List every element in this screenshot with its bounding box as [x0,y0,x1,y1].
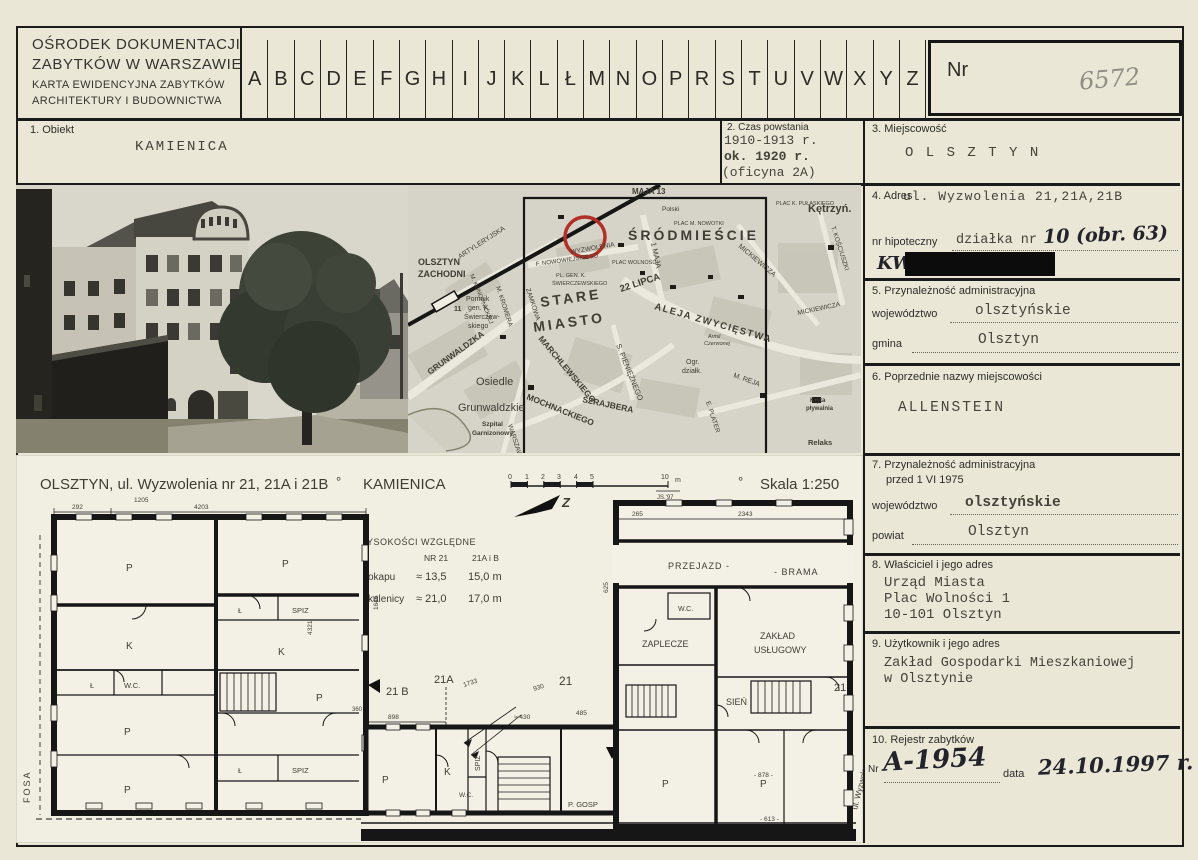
alpha-o: O [637,40,663,118]
room-sien: SIEŃ [726,697,747,707]
plan-subtitle: KAMIENICA [363,476,446,493]
field5-woj-label: województwo [872,308,937,320]
room-wc-wing: W.C. [459,792,473,799]
map-label-srodmiescie: ŚRÓDMIEŚCIE [628,226,759,243]
photo-ground [16,415,408,453]
nr-handwritten-value: 6572 [1078,62,1141,95]
heights-title: WYSOKOŚCI WZGLĘDNE [358,536,476,547]
scale-tick-5: 5 [590,474,594,481]
dim-613: - 613 - [760,816,779,823]
field5-label: 5. Przynależność administracyjna [872,285,1035,297]
field2-line3: (oficyna 2A) [722,165,816,180]
map-label-ogr-1: Ogr. [686,359,699,366]
field9-line2: w Olsztynie [884,672,973,687]
field9-line1: Zakład Gospodarki Mieszkaniowej [884,656,1135,671]
dim-898: 898 [388,714,399,721]
plan-fosa-label: FOSA [22,770,32,803]
room-p-3: P [124,727,131,738]
field5-gmina-label: gmina [872,338,902,350]
dim-2343: 2343 [738,511,753,518]
entrance-21b-label: 21 B [386,686,409,698]
alpha-a: A [242,40,268,118]
room-l-2: Ł [238,606,242,615]
entrance-21a-label: 21A [434,674,454,686]
field7-label2: przed 1 VI 1975 [886,474,964,486]
building-photo [16,185,408,453]
dim-4203: 4203 [194,504,209,511]
scale-tick-4: 4 [574,474,578,481]
field5-gmina-dotted [912,352,1178,353]
room-l-1: Ł [90,681,94,690]
alpha-c: C [295,40,321,118]
field1-label: 1. Obiekt [30,124,74,136]
alpha-s: S [716,40,742,118]
field8-line2: Plac Wolności 1 [884,591,1010,607]
map-label-maja13: MAJA 13 [632,187,666,196]
map-label-pulaski: PLAC K. PUŁASKIEGO [776,201,835,207]
field6-label: 6. Poprzednie nazwy miejscowości [872,371,1042,383]
map-label-pomnik-1: Pomnik [466,296,490,303]
alpha-w: W [821,40,847,118]
field10-data-label: data [1003,768,1024,780]
scale-tick-1: 1 [525,474,529,481]
alpha-p: P [663,40,689,118]
field6-value: ALLENSTEIN [898,400,1005,416]
card-number-box: Nr 6572 [928,40,1182,116]
field8-label: 8. Właściciel i jego adres [872,559,993,571]
north-letter: Z [561,495,571,510]
room-p-right-2: P [760,779,767,790]
map-label-pl-gen-2: ŚWIERCZEWSKIEGO [552,279,608,287]
heights-col2: 21A i B [472,553,499,563]
room-p-right-1: P [662,779,669,790]
field8-bottom-rule [865,631,1180,634]
map-label-plac-wolnosci: PLAC WOLNOŚCI [612,258,658,266]
alphabet-index: A B C D E F G H I J K L Ł M N O P R S T … [242,40,926,118]
heights-col1: NR 21 [424,553,448,563]
field4-address: ul. Wyzwolenia 21,21A,21B [903,189,1123,204]
alpha-h: H [426,40,452,118]
room-p-2: P [282,559,289,570]
plan-title: OLSZTYN, ul. Wyzwolenia nr 21, 21A i 21B [40,476,328,493]
alpha-t: T [742,40,768,118]
field5-gmina-value: Olsztyn [978,332,1039,348]
map-label-polski: Polski [662,206,679,213]
plan-scale-label: Skala 1:250 [760,476,839,493]
map-label-pomnik-3: Świerczew- [464,312,500,321]
map-label-pomnik-nr: 11 [454,306,462,313]
map-label-armii-1: Armii [707,334,721,340]
field5-woj-value: olsztyńskie [975,303,1071,319]
room-wc-right: W.C. [678,606,693,613]
field7-woj-value: olsztyńskie [965,495,1061,511]
heights-row1-a: ≈ 13,5 [416,571,447,583]
city-map: ŚRÓDMIEŚCIE STARE MIASTO MAJA 13 Polski … [408,185,861,453]
room-przejazd: PRZEJAZD - [668,561,730,571]
field4-hipoteczny-typed: działka nr [956,233,1037,248]
card-type-line2: ARCHITEKTURY I BUDOWNICTWA [32,95,222,107]
alpha-z: Z [900,40,926,118]
room-zaplecze: ZAPLECZE [642,639,689,649]
alpha-r: R [689,40,715,118]
field7-powiat-value: Olsztyn [968,524,1029,540]
field2-line1: 1910-1913 r. [724,133,818,148]
alpha-l: L [531,40,557,118]
field4-bottom-rule [865,278,1180,281]
floor-plan: OLSZTYN, ul. Wyzwolenia nr 21, 21A i 21B… [16,455,863,843]
room-k-1: K [126,641,133,652]
map-label-szpital-1: Szpital [482,421,503,428]
dim-1645: 1645 [373,595,380,610]
room-l-3: Ł [238,766,242,775]
alpha-e: E [347,40,373,118]
map-label-plac-nowotki: PLAC M. NOWOTKI [674,221,724,227]
scale-tick-2: 2 [541,474,545,481]
room-brama: - BRAMA [774,567,819,577]
map-label-kryta-1: Kryta [810,398,826,404]
map-label-ogr-2: działk. [682,368,702,375]
map-label-relaks: Relaks [808,438,832,447]
field7-powiat-label: powiat [872,530,904,542]
field7-bottom-rule [865,553,1180,556]
room-k-2: K [278,647,285,658]
map-label-pomnik-2: gen. K. [468,305,490,312]
header-bottom-rule [16,118,1180,121]
field10-nr-dotted [884,782,1000,783]
map-label-kryta-2: pływalnia [806,406,834,412]
scale-unit: m [675,477,681,484]
field2-line2: ok. 1920 r. [724,149,810,164]
room-p-4: P [124,785,131,796]
map-label-armii-2: Czerwonej [704,341,731,347]
field2-label: 2. Czas powstania [727,122,809,133]
field6-bottom-rule [865,453,1180,456]
dim-4321: 4321 [307,620,314,635]
entrance-21-label: 21 [559,674,573,688]
scale-tick-3: 3 [557,474,561,481]
field4-hipoteczny-handwritten: 10 (obr. 63) [1043,222,1169,248]
alpha-x: X [847,40,873,118]
alpha-j: J [479,40,505,118]
room-p-wing: P [382,775,389,786]
scale-tick-10: 10 [661,474,669,481]
field10-nr-label: Nr [868,764,879,775]
alpha-k: K [505,40,531,118]
field10-nr-value: A-1954 [882,742,987,777]
dim-430: ≈ 430 [514,714,531,721]
room-wc-1: W.C. [124,681,140,690]
room-spiz-wing: SPIŻ [473,755,482,771]
field8-line3: 10-101 Olsztyn [884,607,1002,623]
map-label-grunwaldzkie: Grunwaldzkie [458,402,525,414]
dim-1205: 1205 [134,497,149,504]
photo-far-left-building [16,189,52,453]
room-p-5: P [316,693,323,704]
map-label-szpital-2: Garnizonowy [472,430,513,437]
dim-292: 292 [72,504,83,511]
field5-bottom-rule [865,363,1180,366]
field7-label: 7. Przynależność administracyjna [872,459,1035,471]
dim-360: 360 [352,707,363,713]
alpha-f: F [374,40,400,118]
scale-tick-0: 0 [508,474,512,481]
plan-left-block: P P K Ł W.C. Ł SPIZ K P Ł SPIZ P P 21 B [51,514,409,813]
alpha-v: V [795,40,821,118]
alpha-y: Y [874,40,900,118]
heights-row1-b: 15,0 m [468,571,502,583]
room-spiz-1: SPIZ [292,606,309,615]
plan-separator-1: ° [336,474,341,489]
room-spiz-2: SPIZ [292,766,309,775]
field9-label: 9. Użytkownik i jego adres [872,638,1000,650]
field8-line1: Urząd Miasta [884,575,985,591]
map-label-pl-gen-1: PL. GEN. K. [556,273,586,279]
room-zaklad-2: USŁUGOWY [754,645,807,655]
map-label-olsztyn-zachodni-2: ZACHODNI [418,269,466,279]
field1-value: KAMIENICA [135,139,229,155]
org-title-line2: ZABYTKÓW W WARSZAWIE [32,56,242,73]
dim-265: 265 [632,511,643,518]
right-column-divider [863,118,865,843]
field7-woj-dotted [950,514,1178,515]
alpha-ll: Ł [558,40,584,118]
card-type-line1: KARTA EWIDENCYJNA ZABYTKÓW [32,79,225,91]
room-zaklad-1: ZAKŁAD [760,631,796,641]
alpha-i: I [453,40,479,118]
field7-powiat-dotted [912,544,1178,545]
plan-right-block: PRZEJAZD - - BRAMA W.C. ZAPLECZE ZAKŁAD … [612,500,854,827]
alpha-m: M [584,40,610,118]
dim-485: 485 [576,710,587,717]
org-title-line1: OŚRODEK DOKUMENTACJI [32,36,240,53]
field5-woj-dotted [950,322,1178,323]
alpha-b: B [268,40,294,118]
field7-woj-label: województwo [872,500,937,512]
map-label-osiedle: Osiedle [476,376,513,388]
field4-hipoteczny-label: nr hipoteczny [872,236,937,248]
field9-bottom-rule [865,726,1180,729]
alpha-n: N [610,40,636,118]
room-pgosp: P. GOSP [568,800,598,809]
field3-label: 3. Miejscowość [872,123,947,135]
heritage-record-card: OŚRODEK DOKUMENTACJI ZABYTKÓW W WARSZAWI… [0,0,1198,860]
plan-separator-2: ° [738,474,743,489]
nr-label: Nr [947,59,968,82]
dim-878: - 878 - [754,772,773,779]
field3-value: O L S Z T Y N [905,145,1040,161]
heights-row2-a: ≈ 21,0 [416,593,447,605]
entrance-21-right-label: 21 [834,682,846,694]
map-label-olsztyn-zachodni-1: OLSZTYN [418,257,460,267]
alpha-d: D [321,40,347,118]
dim-625: 625 [603,582,610,593]
room-p-1: P [126,563,133,574]
field4-kw-redaction [905,252,1055,276]
alpha-g: G [400,40,426,118]
room-k-wing: K [444,767,451,778]
alpha-u: U [768,40,794,118]
heights-row2-b: 17,0 m [468,593,502,605]
field4-dotted-line [952,250,1178,251]
